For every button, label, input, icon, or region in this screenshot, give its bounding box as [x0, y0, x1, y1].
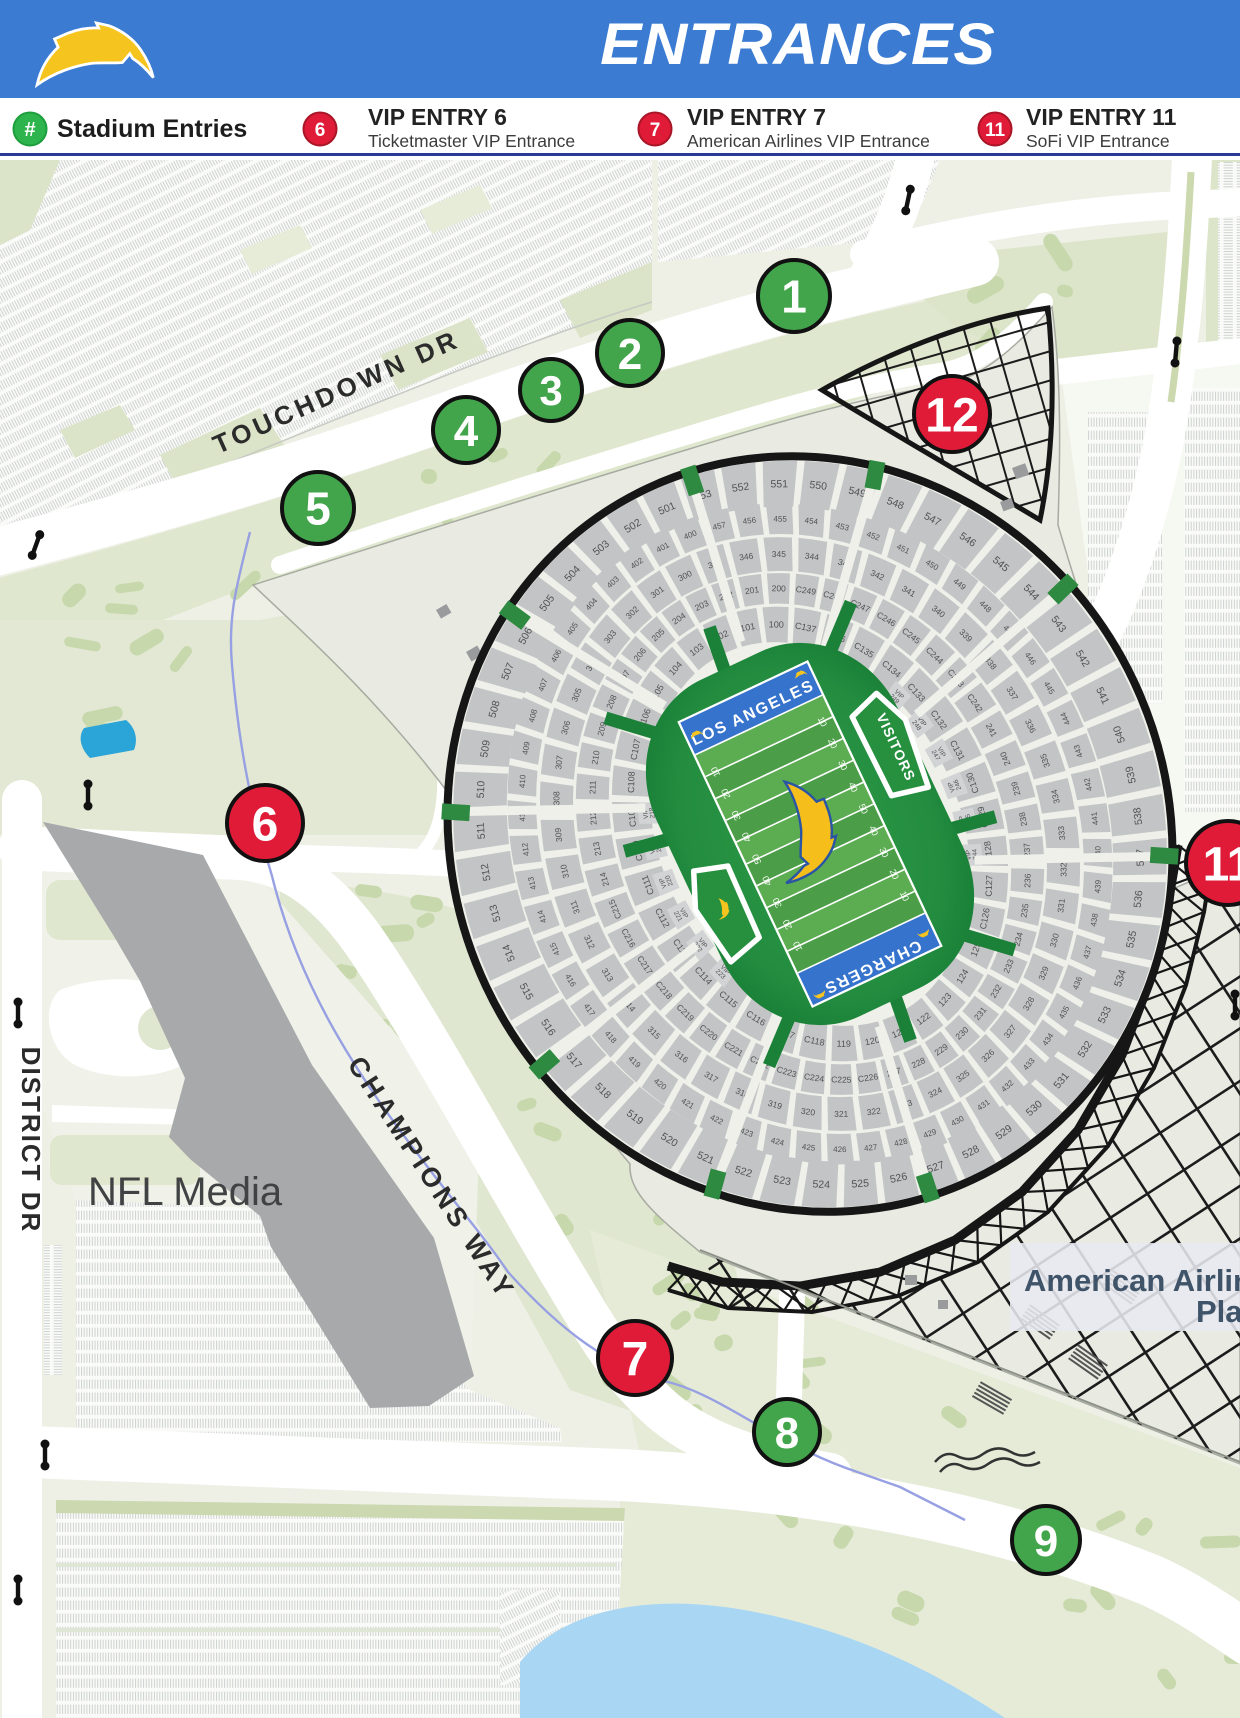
svg-text:426: 426: [833, 1145, 847, 1154]
svg-text:2: 2: [618, 330, 642, 379]
svg-text:332: 332: [1058, 862, 1068, 876]
svg-text:454: 454: [804, 516, 819, 527]
svg-text:119: 119: [836, 1039, 850, 1049]
svg-text:11: 11: [1203, 838, 1240, 891]
svg-text:345: 345: [772, 549, 786, 559]
svg-text:Plaza: Plaza: [1196, 1294, 1240, 1329]
svg-text:344: 344: [804, 550, 820, 562]
svg-text:9: 9: [1034, 1517, 1058, 1566]
svg-text:524: 524: [812, 1178, 830, 1191]
svg-text:4: 4: [454, 407, 479, 456]
svg-text:309: 309: [553, 827, 565, 842]
svg-text:11: 11: [985, 120, 1006, 141]
svg-text:425: 425: [801, 1142, 816, 1153]
svg-text:American Airlines VIP Entrance: American Airlines VIP Entrance: [687, 131, 930, 151]
svg-text:American Airlines: American Airlines: [1024, 1263, 1240, 1298]
svg-text:12: 12: [925, 389, 978, 442]
svg-text:7: 7: [622, 1333, 649, 1386]
svg-text:6: 6: [252, 798, 279, 851]
svg-text:VIP ENTRY 7: VIP ENTRY 7: [687, 104, 826, 130]
svg-text:VIP ENTRY 6: VIP ENTRY 6: [368, 104, 507, 130]
svg-text:456: 456: [742, 516, 757, 526]
svg-text:538: 538: [1131, 807, 1145, 826]
svg-text:SoFi VIP Entrance: SoFi VIP Entrance: [1026, 131, 1170, 151]
svg-text:Ticketmaster VIP Entrance: Ticketmaster VIP Entrance: [368, 131, 575, 151]
svg-text:321: 321: [834, 1109, 848, 1119]
svg-text:DISTRICT DR: DISTRICT DR: [16, 1047, 46, 1234]
svg-text:200: 200: [772, 583, 787, 593]
svg-text:Stadium Entries: Stadium Entries: [57, 115, 247, 143]
svg-text:455: 455: [773, 515, 787, 524]
svg-text:3: 3: [539, 367, 562, 414]
svg-text:7: 7: [650, 120, 661, 141]
svg-text:5: 5: [305, 483, 331, 535]
svg-text:6: 6: [315, 120, 326, 141]
svg-text:C127: C127: [984, 875, 995, 897]
svg-text:236: 236: [1022, 873, 1032, 888]
svg-text:211: 211: [587, 780, 597, 794]
svg-text:100: 100: [769, 619, 784, 629]
svg-text:C225: C225: [831, 1074, 852, 1084]
svg-text:550: 550: [809, 479, 828, 493]
svg-text:511: 511: [475, 822, 488, 840]
svg-text:536: 536: [1132, 890, 1146, 909]
svg-text:8: 8: [775, 1409, 799, 1458]
svg-text:201: 201: [744, 584, 760, 596]
svg-text:NFL Media: NFL Media: [88, 1170, 283, 1214]
svg-text:551: 551: [770, 478, 788, 490]
svg-text:439: 439: [1093, 879, 1103, 893]
svg-text:333: 333: [1056, 825, 1068, 840]
svg-text:427: 427: [864, 1143, 879, 1153]
svg-text:525: 525: [851, 1177, 870, 1190]
svg-text:510: 510: [475, 780, 488, 798]
svg-text:1: 1: [781, 271, 807, 323]
svg-text:VIP ENTRY 11: VIP ENTRY 11: [1026, 104, 1177, 130]
svg-text:#: #: [24, 119, 35, 141]
svg-text:552: 552: [731, 480, 750, 494]
svg-text:322: 322: [866, 1105, 882, 1117]
svg-text:346: 346: [738, 551, 754, 563]
svg-text:307: 307: [553, 754, 565, 770]
svg-text:C108: C108: [626, 771, 637, 793]
svg-text:410: 410: [518, 774, 528, 788]
svg-text:308: 308: [551, 791, 561, 805]
svg-text:320: 320: [800, 1106, 816, 1118]
svg-text:331: 331: [1055, 898, 1067, 914]
